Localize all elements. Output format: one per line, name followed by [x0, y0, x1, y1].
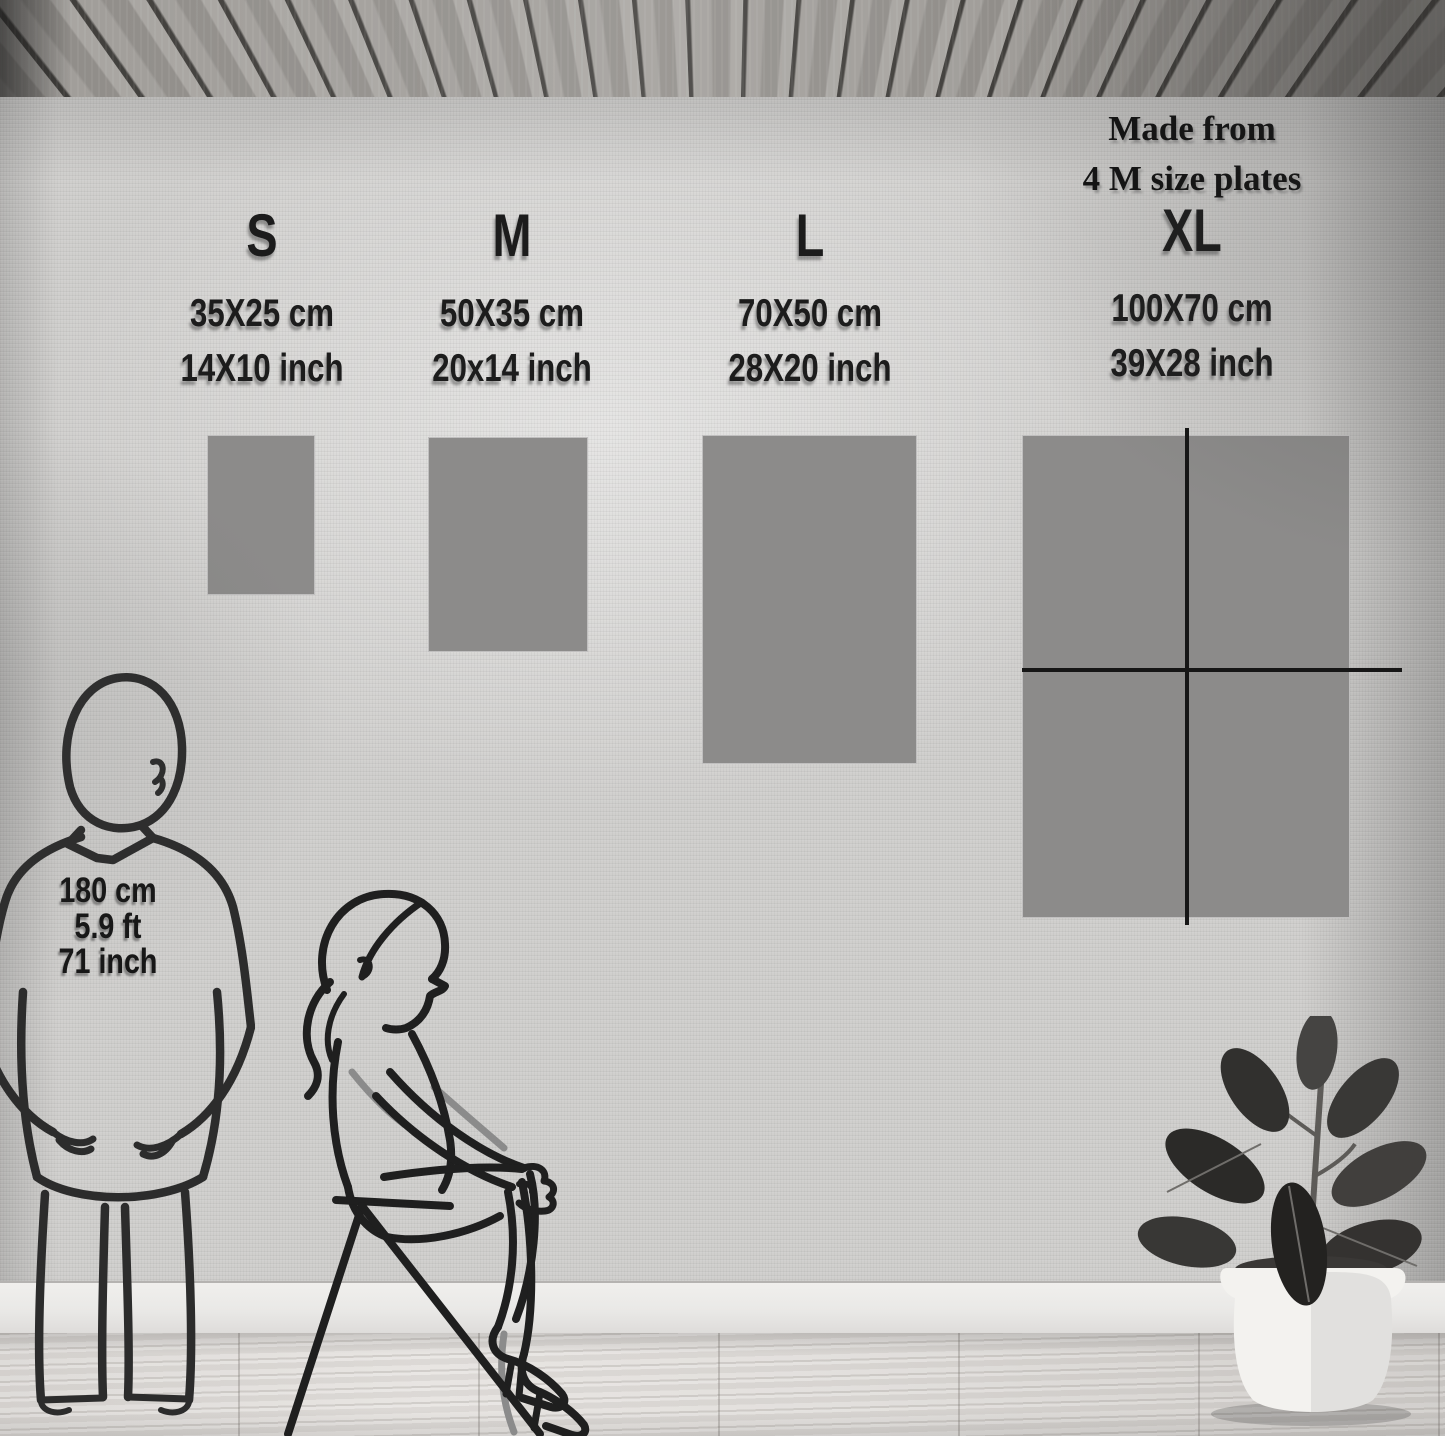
xl-panel-divider-vertical [1185, 428, 1189, 925]
size-cm-m: 50X35 cm [408, 286, 616, 341]
size-letter-s: S [161, 206, 364, 266]
size-inch-m: 20x14 inch [408, 341, 616, 396]
size-letter-l: L [709, 206, 912, 266]
size-inch-s: 14X10 inch [158, 341, 366, 396]
xl-note: Made from 4 M size plates [1022, 104, 1362, 203]
standing-man-line-figure [0, 662, 255, 1417]
wood-ceiling-icon [0, 0, 1445, 99]
size-column-m: M 50X35 cm 20x14 inch [382, 206, 642, 397]
xl-panel-divider-horizontal [1022, 668, 1402, 672]
height-ft: 5.9 ft [42, 909, 173, 945]
size-guide-scene: Made from 4 M size plates S 35X25 cm 14X… [0, 0, 1445, 1436]
xl-note-line1: Made from [1022, 104, 1362, 154]
size-column-s: S 35X25 cm 14X10 inch [132, 206, 392, 397]
size-letter-m: M [411, 206, 614, 266]
size-swatch-l [702, 435, 917, 764]
size-swatch-s [207, 435, 315, 595]
height-cm: 180 cm [42, 873, 173, 909]
size-cm-xl: 100X70 cm [1064, 281, 1320, 336]
potted-plant-icon [1103, 1016, 1445, 1436]
size-column-l: L 70X50 cm 28X20 inch [680, 206, 940, 397]
xl-note-line2: 4 M size plates [1022, 154, 1362, 204]
height-inch: 71 inch [42, 944, 173, 980]
size-cm-l: 70X50 cm [706, 286, 914, 341]
person-height-label: 180 cm 5.9 ft 71 inch [42, 873, 173, 980]
size-cm-s: 35X25 cm [158, 286, 366, 341]
size-column-xl: XL 100X70 cm 39X28 inch [1032, 201, 1352, 392]
size-letter-xl: XL [1067, 201, 1317, 261]
size-inch-xl: 39X28 inch [1064, 336, 1320, 391]
sitting-woman-line-figure [272, 882, 607, 1436]
size-swatch-m [428, 437, 588, 652]
size-inch-l: 28X20 inch [706, 341, 914, 396]
